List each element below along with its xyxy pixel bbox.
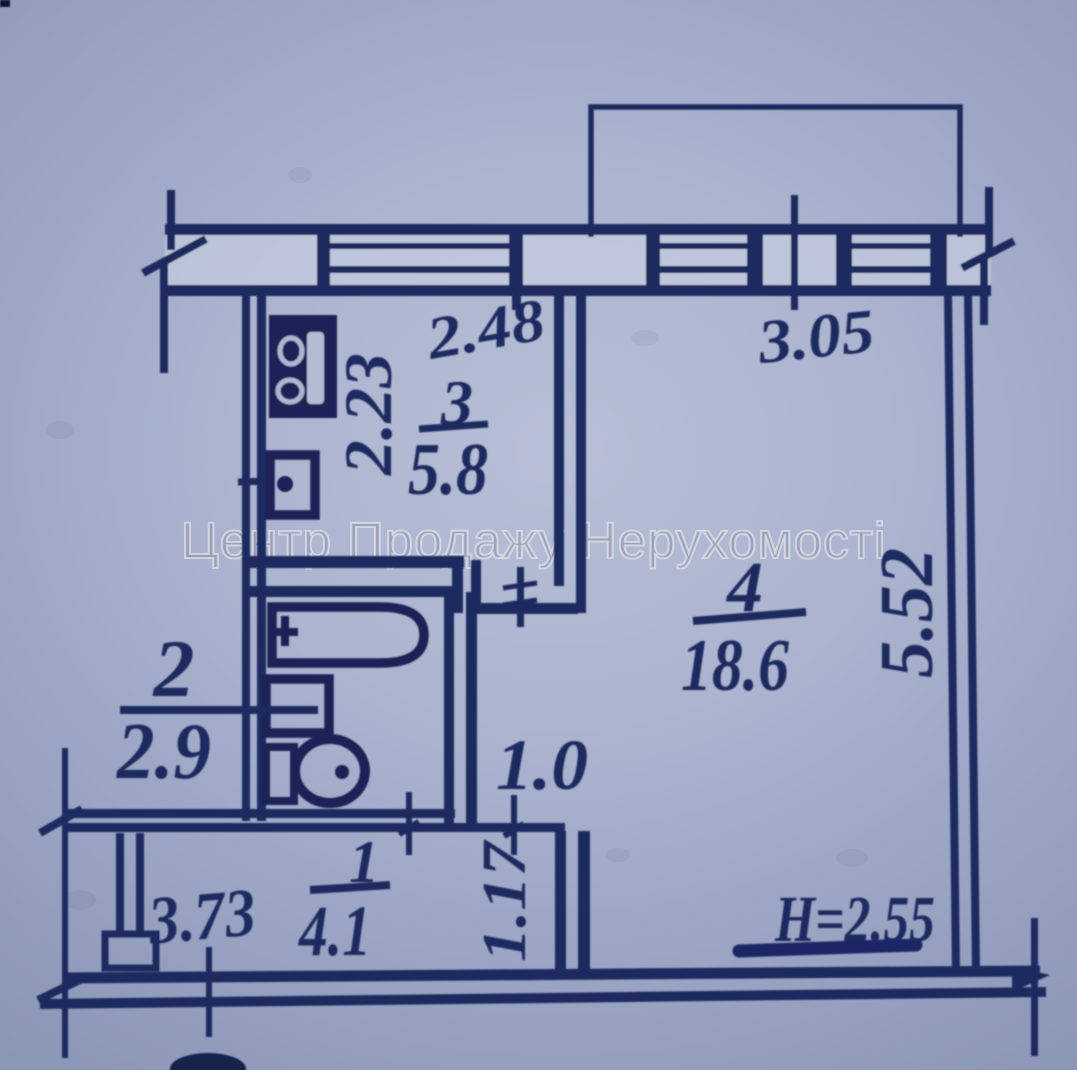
svg-text:2.23: 2.23 <box>330 353 406 476</box>
svg-text:18.6: 18.6 <box>681 625 789 707</box>
svg-text:3.05: 3.05 <box>754 297 878 377</box>
svg-text:3.73: 3.73 <box>144 873 258 958</box>
svg-text:1.0: 1.0 <box>496 725 588 805</box>
svg-text:2.9: 2.9 <box>116 708 211 796</box>
svg-text:5.8: 5.8 <box>408 429 488 511</box>
svg-text:1.17: 1.17 <box>471 839 539 962</box>
svg-text:5.52: 5.52 <box>865 548 949 678</box>
svg-text:4.1: 4.1 <box>297 891 371 971</box>
svg-text:2: 2 <box>153 623 195 714</box>
svg-text:2.48: 2.48 <box>421 286 550 372</box>
